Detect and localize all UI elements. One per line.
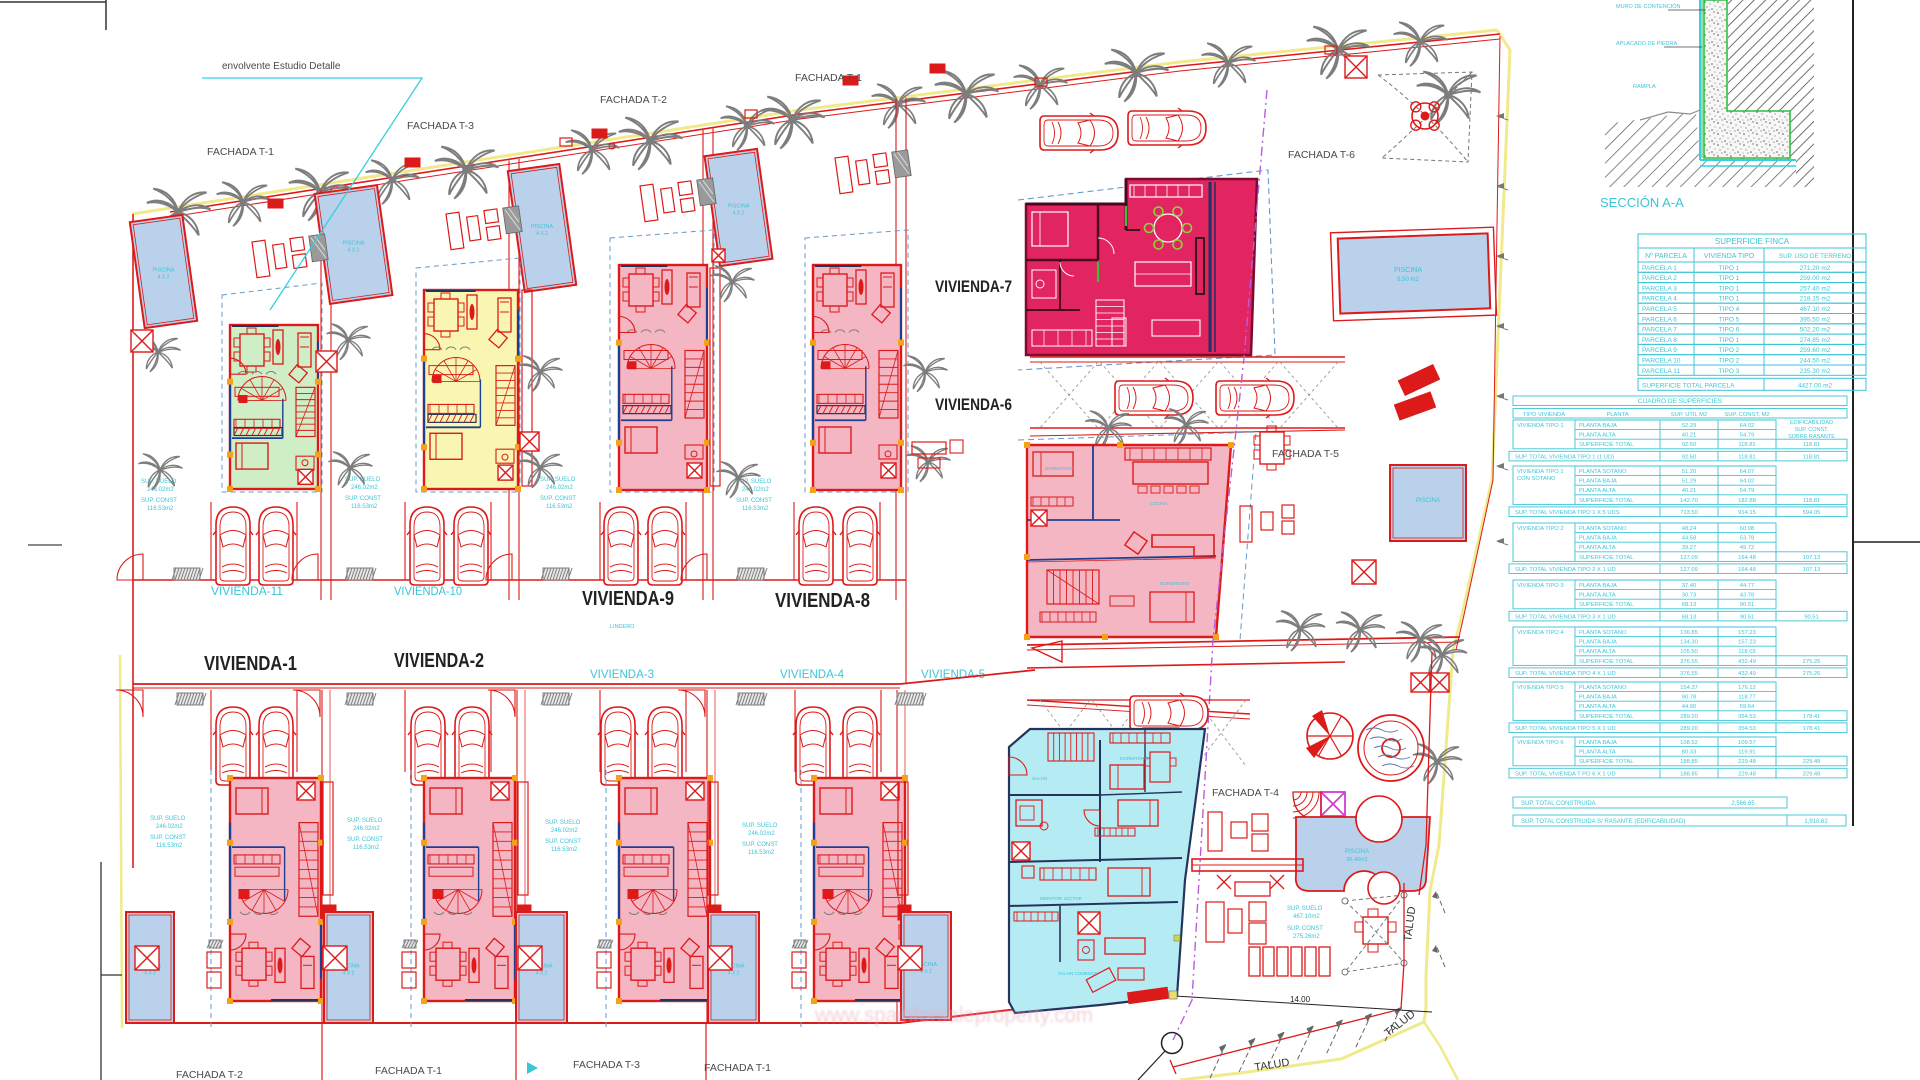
svg-text:49.72: 49.72 <box>1740 545 1755 551</box>
svg-text:TIPO 2: TIPO 2 <box>1719 358 1740 365</box>
svg-text:176.12: 176.12 <box>1738 685 1756 691</box>
svg-text:246.02m2: 246.02m2 <box>351 485 378 491</box>
svg-text:SUP. CONST: SUP. CONST <box>141 498 177 504</box>
svg-text:275.26: 275.26 <box>1803 659 1821 665</box>
svg-text:TIPO 3: TIPO 3 <box>1719 368 1740 375</box>
svg-text:PLANTA ALTA: PLANTA ALTA <box>1579 649 1616 655</box>
svg-text:PISCINA: PISCINA <box>1394 267 1422 274</box>
svg-text:PARCELA 6: PARCELA 6 <box>1642 316 1677 323</box>
svg-text:PISCINA: PISCINA <box>1416 498 1440 504</box>
svg-text:PARCELA 11: PARCELA 11 <box>1642 368 1680 375</box>
svg-text:92.50: 92.50 <box>1682 454 1697 460</box>
svg-text:289.20: 289.20 <box>1680 714 1698 720</box>
svg-text:108.52: 108.52 <box>1680 740 1698 746</box>
svg-text:FACHADA T-2: FACHADA T-2 <box>176 1069 243 1080</box>
svg-text:4 X 2: 4 X 2 <box>158 275 170 281</box>
svg-text:134.30: 134.30 <box>1680 640 1698 646</box>
svg-text:376.55: 376.55 <box>1680 659 1698 665</box>
svg-text:PLANTA BAJA: PLANTA BAJA <box>1579 640 1617 646</box>
svg-text:APLACADO DE PIEDRA: APLACADO DE PIEDRA <box>1616 41 1677 47</box>
svg-text:CON SOTANO: CON SOTANO <box>1517 476 1556 482</box>
svg-text:119.91: 119.91 <box>1738 750 1755 756</box>
svg-text:TIPO VIVIENDA: TIPO VIVIENDA <box>1523 412 1565 418</box>
svg-text:TIPO 1: TIPO 1 <box>1719 296 1740 303</box>
svg-text:PARCELA 2: PARCELA 2 <box>1642 275 1677 282</box>
svg-text:60.98: 60.98 <box>1740 526 1755 532</box>
svg-text:275.26m2: 275.26m2 <box>1293 934 1320 940</box>
svg-text:FACHADA T-2: FACHADA T-2 <box>600 94 667 106</box>
svg-text:RAMPLA: RAMPLA <box>1633 84 1656 90</box>
svg-text:PLANTA: PLANTA <box>1606 412 1628 418</box>
svg-text:www.spainforsaleproperty.com: www.spainforsaleproperty.com <box>814 1004 1093 1027</box>
svg-text:107.13: 107.13 <box>1803 567 1821 573</box>
svg-text:4 X 2: 4 X 2 <box>343 971 355 977</box>
svg-text:107.13: 107.13 <box>1803 555 1821 561</box>
svg-text:467.10 m2: 467.10 m2 <box>1800 306 1831 313</box>
svg-text:PISCINA: PISCINA <box>727 204 749 210</box>
svg-text:4 X 2: 4 X 2 <box>728 971 740 977</box>
svg-text:PISCINA: PISCINA <box>1345 849 1369 855</box>
svg-text:PLANTA BAJA: PLANTA BAJA <box>1579 536 1617 542</box>
svg-text:SALON: SALON <box>1032 776 1047 781</box>
svg-text:VIVIENDA TIPO 3: VIVIENDA TIPO 3 <box>1517 583 1564 589</box>
svg-text:TIPO 1: TIPO 1 <box>1719 285 1740 292</box>
svg-text:SUP. TOTAL VIVIENDA TIPO 1 X 5: SUP. TOTAL VIVIENDA TIPO 1 X 5 UDS <box>1515 510 1620 516</box>
svg-text:244.50 m2: 244.50 m2 <box>1800 358 1831 365</box>
svg-text:44.77: 44.77 <box>1740 583 1755 589</box>
svg-text:SUP. USO DE TERRENO: SUP. USO DE TERRENO <box>1779 253 1851 260</box>
svg-text:PLANTA BAJA: PLANTA BAJA <box>1579 423 1617 429</box>
svg-text:SUP. CONST: SUP. CONST <box>347 837 383 843</box>
svg-text:VIVIENDA TIPO 1: VIVIENDA TIPO 1 <box>1517 423 1564 429</box>
svg-text:594.05: 594.05 <box>1803 510 1821 516</box>
svg-text:SUP. SUELO: SUP. SUELO <box>545 820 581 826</box>
svg-text:SUPERFICIE TOTAL: SUPERFICIE TOTAL <box>1579 602 1634 608</box>
svg-text:COCINA: COCINA <box>1150 501 1168 506</box>
svg-text:44.58: 44.58 <box>1682 536 1697 542</box>
svg-text:59.64: 59.64 <box>1740 704 1755 710</box>
svg-text:467.10m2: 467.10m2 <box>1293 914 1320 920</box>
svg-text:SUP. TOTAL VIVIENDA TIPO 4 X 1: SUP. TOTAL VIVIENDA TIPO 4 X 1 UD <box>1515 671 1616 677</box>
svg-text:SUPERFICIE TOTAL PARCELA: SUPERFICIE TOTAL PARCELA <box>1642 382 1735 389</box>
svg-text:MURO DE CONTENCIÓN: MURO DE CONTENCIÓN <box>1616 3 1681 10</box>
svg-text:SUPERFICIE TOTAL: SUPERFICIE TOTAL <box>1579 659 1634 665</box>
svg-text:SUP. CONST: SUP. CONST <box>150 835 186 841</box>
svg-text:PLANTA ALTA: PLANTA ALTA <box>1579 545 1616 551</box>
svg-text:80.33: 80.33 <box>1682 750 1697 756</box>
svg-text:PARCELA 5: PARCELA 5 <box>1642 306 1677 313</box>
svg-text:2,566.65: 2,566.65 <box>1731 801 1755 807</box>
svg-text:PLANTA ALTA: PLANTA ALTA <box>1579 750 1616 756</box>
svg-text:90.51: 90.51 <box>1740 602 1755 608</box>
svg-text:157.23: 157.23 <box>1738 630 1756 636</box>
svg-text:395.50 m2: 395.50 m2 <box>1800 316 1831 323</box>
svg-text:PLANTA BAJA: PLANTA BAJA <box>1579 583 1617 589</box>
svg-text:SUPERFICIE TOTAL: SUPERFICIE TOTAL <box>1579 498 1634 504</box>
svg-text:VIVIENDA-6: VIVIENDA-6 <box>935 395 1012 414</box>
svg-text:246.02m2: 246.02m2 <box>748 831 775 837</box>
svg-text:118.03: 118.03 <box>1738 649 1755 655</box>
svg-text:SALON COMEDOR: SALON COMEDOR <box>1058 971 1099 976</box>
svg-text:37.40: 37.40 <box>1682 583 1697 589</box>
svg-text:PARCELA 7: PARCELA 7 <box>1642 327 1677 334</box>
svg-text:118.81: 118.81 <box>1738 454 1755 460</box>
svg-text:246.02m2: 246.02m2 <box>353 826 380 832</box>
svg-text:PLANTA ALTA: PLANTA ALTA <box>1579 593 1616 599</box>
svg-text:VIVIENDA TIPO 6: VIVIENDA TIPO 6 <box>1517 740 1564 746</box>
svg-text:116.53m2: 116.53m2 <box>147 506 174 512</box>
svg-text:4 X 2: 4 X 2 <box>733 211 745 217</box>
svg-text:DORMITORIO: DORMITORIO <box>1160 581 1190 586</box>
svg-text:229.48: 229.48 <box>1738 759 1756 765</box>
svg-text:TIPO 1: TIPO 1 <box>1719 275 1740 282</box>
svg-text:PLANTA ALTA: PLANTA ALTA <box>1579 488 1616 494</box>
svg-text:SUP. TOTAL VIVIENDA TIPO 3 X 1: SUP. TOTAL VIVIENDA TIPO 3 X 1 UD <box>1515 614 1616 620</box>
svg-text:432.49: 432.49 <box>1738 659 1756 665</box>
svg-text:354.53: 354.53 <box>1738 714 1756 720</box>
svg-text:SUPERFICIE TOTAL: SUPERFICIE TOTAL <box>1579 442 1634 448</box>
svg-text:SUP. SUELO: SUP. SUELO <box>540 477 576 483</box>
svg-text:PISCINA: PISCINA <box>152 268 174 274</box>
svg-text:PARCELA 10: PARCELA 10 <box>1642 358 1681 365</box>
svg-text:246.02m2: 246.02m2 <box>742 487 769 493</box>
svg-text:SUP. SUELO: SUP. SUELO <box>150 816 186 822</box>
svg-text:259.00 m2: 259.00 m2 <box>1800 275 1831 282</box>
svg-text:164.48: 164.48 <box>1738 567 1756 573</box>
svg-text:VIVIENDA-8: VIVIENDA-8 <box>775 590 870 612</box>
svg-text:VIVIENDA TIPO 4: VIVIENDA TIPO 4 <box>1517 630 1564 636</box>
svg-text:TIPO 1: TIPO 1 <box>1719 265 1740 272</box>
svg-text:64.07: 64.07 <box>1740 469 1755 475</box>
svg-text:PISCINA: PISCINA <box>531 224 553 230</box>
svg-text:54.79: 54.79 <box>1740 488 1755 494</box>
svg-text:40.21: 40.21 <box>1682 488 1697 494</box>
svg-text:376.55: 376.55 <box>1680 671 1698 677</box>
svg-text:TIPO 6: TIPO 6 <box>1719 327 1740 334</box>
svg-text:SUP. TOTAL VIVIENDA T PO 6 X 1: SUP. TOTAL VIVIENDA T PO 6 X 1 UD <box>1515 771 1616 777</box>
svg-text:257.40 m2: 257.40 m2 <box>1800 285 1831 292</box>
svg-text:271.20 m2: 271.20 m2 <box>1800 265 1831 272</box>
svg-text:51.29: 51.29 <box>1682 479 1697 485</box>
svg-text:SUP. TOTAL CONSTRUIDA S/ RASAN: SUP. TOTAL CONSTRUIDA S/ RASANTE (EDIFIC… <box>1521 819 1685 825</box>
svg-text:CUADRO DE SUPERFICIES: CUADRO DE SUPERFICIES <box>1638 398 1723 405</box>
svg-text:1,910.62: 1,910.62 <box>1804 819 1828 825</box>
svg-text:274.85 m2: 274.85 m2 <box>1800 337 1831 344</box>
svg-text:TIPO 2: TIPO 2 <box>1719 347 1740 354</box>
svg-text:LINDERO: LINDERO <box>610 624 635 630</box>
svg-text:SUP. CONST: SUP. CONST <box>345 496 381 502</box>
svg-text:116.53m2: 116.53m2 <box>551 847 578 853</box>
svg-text:PLANTA SOTANO: PLANTA SOTANO <box>1579 469 1627 475</box>
svg-text:FACHADA T-6: FACHADA T-6 <box>1288 149 1355 161</box>
svg-text:SUP. CONST: SUP. CONST <box>736 498 772 504</box>
svg-text:8.50 m2: 8.50 m2 <box>1397 277 1419 283</box>
svg-text:142.70: 142.70 <box>1680 498 1698 504</box>
svg-text:40.21: 40.21 <box>1682 433 1697 439</box>
svg-text:157.23: 157.23 <box>1738 640 1756 646</box>
svg-text:246.02m2: 246.02m2 <box>156 824 183 830</box>
svg-text:PLANTA ALTA: PLANTA ALTA <box>1579 704 1616 710</box>
svg-text:VIVIENDA-9: VIVIENDA-9 <box>582 588 674 610</box>
svg-text:64.02: 64.02 <box>1740 479 1755 485</box>
svg-text:432.49: 432.49 <box>1738 671 1756 677</box>
svg-text:TIPO 4: TIPO 4 <box>1719 306 1740 313</box>
svg-text:VIVIENDA-10: VIVIENDA-10 <box>394 584 462 598</box>
svg-text:VIVIENDA-4: VIVIENDA-4 <box>780 667 844 681</box>
svg-text:PARCELA 8: PARCELA 8 <box>1642 337 1677 344</box>
svg-text:SUPERFICIE FINCA: SUPERFICIE FINCA <box>1715 237 1790 246</box>
svg-text:90.51: 90.51 <box>1740 614 1755 620</box>
svg-text:FACHADA T-1: FACHADA T-1 <box>795 72 862 84</box>
svg-text:VIVIENDA-7: VIVIENDA-7 <box>935 277 1012 296</box>
svg-text:PLANTA BAJA: PLANTA BAJA <box>1579 479 1617 485</box>
svg-text:218.15 m2: 218.15 m2 <box>1800 296 1831 303</box>
svg-text:SUP. SUELO: SUP. SUELO <box>1287 906 1323 912</box>
svg-text:289.20: 289.20 <box>1680 726 1698 732</box>
svg-text:PLANTA SOTANO: PLANTA SOTANO <box>1579 526 1627 532</box>
svg-text:14.00: 14.00 <box>1290 995 1311 1004</box>
svg-text:SUP. TOTAL VIVIENDA TIPO 5 X 1: SUP. TOTAL VIVIENDA TIPO 5 X 1 UD <box>1515 726 1616 732</box>
svg-text:188.85: 188.85 <box>1680 771 1698 777</box>
svg-text:246.02m2: 246.02m2 <box>551 828 578 834</box>
svg-text:Nº PARCELA: Nº PARCELA <box>1645 253 1687 260</box>
svg-text:PLANTA BAJA: PLANTA BAJA <box>1579 740 1617 746</box>
svg-text:235.30 m2: 235.30 m2 <box>1800 368 1831 375</box>
svg-text:VIVIENDA TIPO 5: VIVIENDA TIPO 5 <box>1517 685 1564 691</box>
svg-text:SUPERFICIE TOTAL: SUPERFICIE TOTAL <box>1579 555 1634 561</box>
svg-text:VIVIENDA-2: VIVIENDA-2 <box>394 650 484 672</box>
svg-text:44.90: 44.90 <box>1682 704 1697 710</box>
svg-text:SUP. SUELO: SUP. SUELO <box>742 823 778 829</box>
svg-text:229.48: 229.48 <box>1803 759 1821 765</box>
svg-text:90.78: 90.78 <box>1682 695 1697 701</box>
svg-text:DORMITORIO: DORMITORIO <box>1045 466 1075 471</box>
svg-text:FACHADA T-3: FACHADA T-3 <box>573 1059 640 1071</box>
svg-text:116.53m2: 116.53m2 <box>351 504 378 510</box>
svg-text:116.53m2: 116.53m2 <box>742 506 769 512</box>
svg-text:EDIFICABILIDAD: EDIFICABILIDAD <box>1790 420 1833 426</box>
svg-text:118.81: 118.81 <box>1803 442 1820 448</box>
svg-text:SUP. CONST: SUP. CONST <box>540 496 576 502</box>
svg-text:SOBRE RASANTE: SOBRE RASANTE <box>1788 434 1835 440</box>
svg-text:259.60 m2: 259.60 m2 <box>1800 347 1831 354</box>
svg-text:FACHADA T-5: FACHADA T-5 <box>1272 448 1339 460</box>
svg-text:VIVIENDA TIPO 2: VIVIENDA TIPO 2 <box>1517 526 1564 532</box>
svg-text:36.40m2: 36.40m2 <box>1346 857 1367 863</box>
svg-text:118.77: 118.77 <box>1738 695 1755 701</box>
svg-text:PARCELA 1: PARCELA 1 <box>1642 265 1677 272</box>
svg-text:4427.00 m2: 4427.00 m2 <box>1798 382 1833 389</box>
svg-text:SUP. CONST: SUP. CONST <box>742 842 778 848</box>
svg-text:SUP. TOTAL VIVIENDA TIPO 2 X 1: SUP. TOTAL VIVIENDA TIPO 2 X 1 UD <box>1515 567 1616 573</box>
svg-text:SUP. CONST: SUP. CONST <box>1287 926 1323 932</box>
svg-text:118.81: 118.81 <box>1803 454 1820 460</box>
svg-text:275.26: 275.26 <box>1803 671 1821 677</box>
svg-text:FACHADA T-1: FACHADA T-1 <box>375 1065 442 1077</box>
svg-text:VIVIENDA-11: VIVIENDA-11 <box>211 584 283 598</box>
svg-text:51.20: 51.20 <box>1682 469 1697 475</box>
svg-text:48.24: 48.24 <box>1682 526 1697 532</box>
svg-text:502.20 m2: 502.20 m2 <box>1800 327 1831 334</box>
svg-text:PARCELA 3: PARCELA 3 <box>1642 285 1677 292</box>
svg-text:MONITORI LECTOR: MONITORI LECTOR <box>1040 896 1083 901</box>
svg-text:4 X 2: 4 X 2 <box>536 971 548 977</box>
svg-text:52.29: 52.29 <box>1682 423 1697 429</box>
svg-text:FACHADA T-4: FACHADA T-4 <box>1212 787 1279 799</box>
svg-text:354.53: 354.53 <box>1738 726 1756 732</box>
svg-text:PLANTA SOTANO: PLANTA SOTANO <box>1579 630 1627 636</box>
svg-text:SUP. CONST: SUP. CONST <box>545 839 581 845</box>
svg-text:178.41: 178.41 <box>1803 714 1821 720</box>
svg-text:SECCIÓN A-A: SECCIÓN A-A <box>1600 195 1684 210</box>
svg-text:PARCELA 9: PARCELA 9 <box>1642 347 1677 354</box>
svg-text:229.48: 229.48 <box>1803 771 1821 777</box>
svg-text:VIVIENDA-1: VIVIENDA-1 <box>204 653 297 675</box>
svg-text:SUPERFICIE TOTAL: SUPERFICIE TOTAL <box>1579 759 1634 765</box>
svg-text:DORMITORIO: DORMITORIO <box>1120 756 1150 761</box>
svg-text:SUP. CONST. M2: SUP. CONST. M2 <box>1724 412 1769 418</box>
svg-text:PLANTA ALTA: PLANTA ALTA <box>1579 433 1616 439</box>
svg-text:SUP. SUELO: SUP. SUELO <box>347 818 383 824</box>
svg-text:914.15: 914.15 <box>1738 510 1756 516</box>
svg-text:43.78: 43.78 <box>1740 593 1755 599</box>
svg-text:188.85: 188.85 <box>1680 759 1698 765</box>
svg-text:246.02m2: 246.02m2 <box>147 487 174 493</box>
svg-text:118.81: 118.81 <box>1738 442 1755 448</box>
svg-text:SUPERFICIE TOTAL: SUPERFICIE TOTAL <box>1579 714 1634 720</box>
svg-text:VIVIENDA TIPO 1: VIVIENDA TIPO 1 <box>1517 469 1564 475</box>
svg-text:4 X 2: 4 X 2 <box>536 231 548 237</box>
svg-text:229.48: 229.48 <box>1738 771 1756 777</box>
svg-text:VIVIENDA TIPO: VIVIENDA TIPO <box>1704 253 1755 260</box>
svg-text:90.51: 90.51 <box>1804 614 1819 620</box>
svg-text:116.53m2: 116.53m2 <box>546 504 573 510</box>
svg-text:154.37: 154.37 <box>1680 685 1698 691</box>
svg-text:VIVIENDA-3: VIVIENDA-3 <box>590 667 654 681</box>
svg-text:FACHADA T-1: FACHADA T-1 <box>207 146 274 158</box>
svg-text:30.73: 30.73 <box>1682 593 1697 599</box>
svg-text:116.53m2: 116.53m2 <box>353 845 380 851</box>
svg-text:TIPO 5: TIPO 5 <box>1719 316 1740 323</box>
svg-text:FACHADA T-3: FACHADA T-3 <box>407 120 474 132</box>
svg-text:PLANTA SOTANO: PLANTA SOTANO <box>1579 685 1627 691</box>
svg-text:4 X 2: 4 X 2 <box>348 248 360 254</box>
svg-text:118.81: 118.81 <box>1803 498 1820 504</box>
svg-text:64.02: 64.02 <box>1740 423 1755 429</box>
svg-text:FACHADA T-1: FACHADA T-1 <box>704 1062 771 1074</box>
svg-text:92.50: 92.50 <box>1682 442 1697 448</box>
svg-text:105.50: 105.50 <box>1680 649 1698 655</box>
svg-text:182.88: 182.88 <box>1738 498 1756 504</box>
svg-text:127.09: 127.09 <box>1680 555 1698 561</box>
svg-text:SUP. TOTAL CONSTRUIDA: SUP. TOTAL CONSTRUIDA <box>1521 801 1596 807</box>
svg-text:SUP. UTIL M2: SUP. UTIL M2 <box>1671 412 1707 418</box>
svg-text:PISCINA: PISCINA <box>342 241 364 247</box>
svg-text:SUP. CONST.: SUP. CONST. <box>1795 427 1829 433</box>
svg-text:713.50: 713.50 <box>1680 510 1698 516</box>
svg-text:68.13: 68.13 <box>1682 602 1697 608</box>
svg-text:envolvente Estudio Detalle: envolvente Estudio Detalle <box>222 61 341 72</box>
svg-text:68.13: 68.13 <box>1682 614 1697 620</box>
svg-text:54.79: 54.79 <box>1740 433 1755 439</box>
svg-text:246.02m2: 246.02m2 <box>546 485 573 491</box>
svg-text:PLANTA BAJA: PLANTA BAJA <box>1579 695 1617 701</box>
svg-text:PARCELA 4: PARCELA 4 <box>1642 296 1677 303</box>
svg-text:116.53m2: 116.53m2 <box>156 843 183 849</box>
svg-text:109.57: 109.57 <box>1738 740 1756 746</box>
svg-text:178.41: 178.41 <box>1803 726 1821 732</box>
svg-text:164.48: 164.48 <box>1738 555 1756 561</box>
svg-text:39.27: 39.27 <box>1682 545 1697 551</box>
svg-text:TIPO 1: TIPO 1 <box>1719 337 1740 344</box>
svg-text:SUP. TOTAL VIVIENDA TIPO 1 (1: SUP. TOTAL VIVIENDA TIPO 1 (1 UD) <box>1515 454 1614 460</box>
svg-text:4 X 2: 4 X 2 <box>144 971 156 977</box>
svg-text:127.09: 127.09 <box>1680 567 1698 573</box>
svg-text:136.85: 136.85 <box>1680 630 1698 636</box>
svg-text:53.78: 53.78 <box>1740 536 1755 542</box>
svg-text:116.53m2: 116.53m2 <box>748 850 775 856</box>
